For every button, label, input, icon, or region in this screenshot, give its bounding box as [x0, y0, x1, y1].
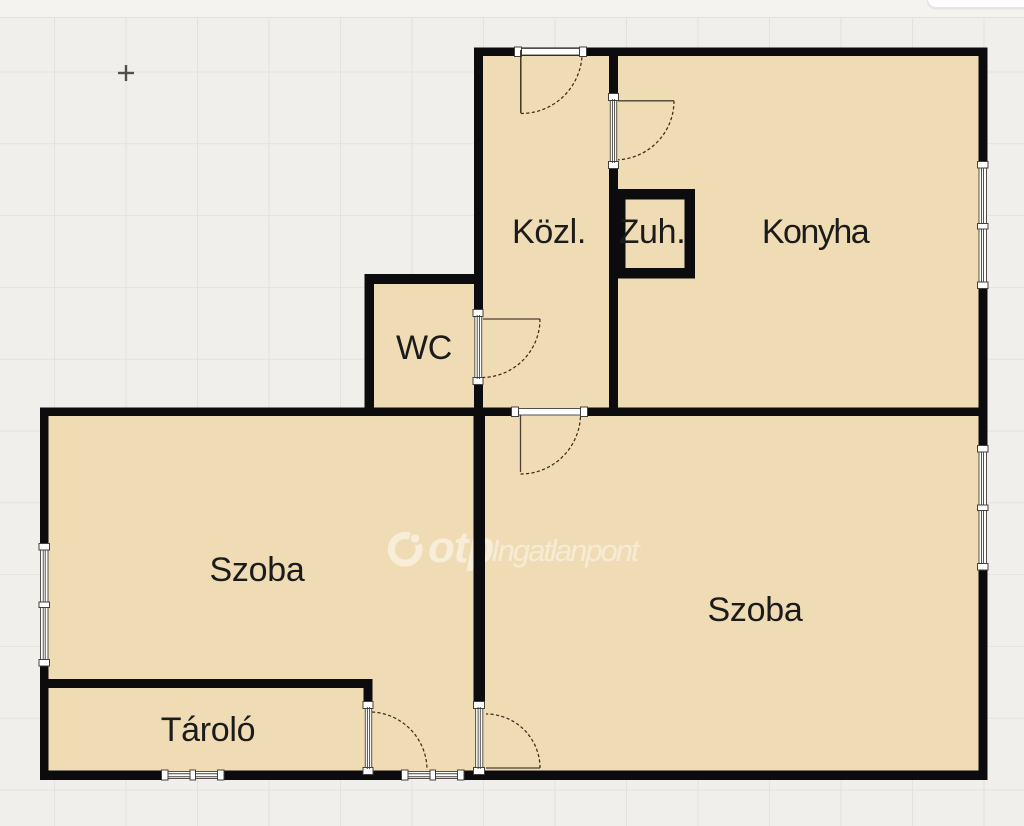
svg-text:Szoba: Szoba — [708, 591, 803, 629]
svg-text:Tároló: Tároló — [161, 711, 256, 749]
svg-text:Ingatlanpont: Ingatlanpont — [491, 533, 641, 568]
svg-text:Konyha: Konyha — [762, 213, 870, 251]
svg-text:Közl.: Közl. — [512, 213, 586, 251]
svg-text:WC: WC — [396, 329, 452, 367]
svg-text:Zuh.: Zuh. — [619, 213, 686, 251]
svg-text:Szoba: Szoba — [210, 551, 305, 589]
